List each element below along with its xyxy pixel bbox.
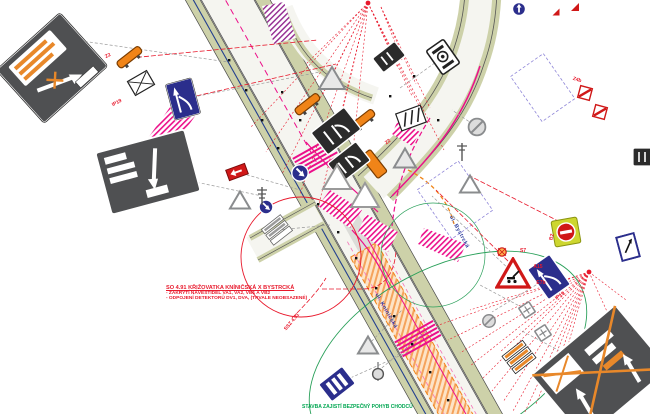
sign-code-label-a15: A15 — [533, 264, 542, 270]
existing-triangle-sign-1 — [317, 65, 347, 91]
existing-circle-sign-2 — [482, 314, 497, 329]
existing-triangle-sign-7 — [349, 181, 381, 209]
roadworks-triangle-sign — [495, 257, 531, 289]
existing-circle-sign-1 — [467, 117, 487, 137]
warning-lamp-icon — [496, 246, 508, 258]
construction-note-line2: - ODPOJENÍ DETEKTORŮ DV1, DVA, (TRVALE N… — [166, 296, 336, 301]
signal-mast-icon — [255, 185, 269, 207]
existing-diamond-sign-1 — [516, 299, 537, 320]
existing-triangle-sign-3 — [228, 190, 252, 211]
pedestrian-note: STAVBA ZAJISTÍ BEZPEČNÝ POHYB CHODCŮ — [302, 404, 413, 410]
blue-round-sign-top — [512, 2, 527, 17]
sign-code-label-e7b: E7b — [536, 280, 545, 286]
dark-lane-board-edge — [632, 147, 650, 167]
no-entry-board-sign — [550, 216, 582, 248]
existing-pole-circle-sign — [371, 360, 385, 382]
existing-diamond-sign-2 — [532, 322, 553, 343]
red-flag-icon-1 — [570, 2, 580, 12]
signal-mast-icon-2 — [455, 141, 469, 163]
existing-triangle-sign-4 — [458, 174, 482, 195]
sign-code-label-s7: S7 — [520, 248, 526, 254]
red-flag-icon-2 — [552, 8, 561, 17]
existing-triangle-sign-5 — [356, 335, 380, 356]
traffic-plan-canvas: SO 4.91 KŘIŽOVATKA KNÍNIČSKÁ X BYSTRCKÁ … — [0, 0, 650, 414]
keep-right-sign — [291, 164, 310, 183]
fan-origin-dot-right — [587, 270, 592, 275]
existing-triangle-sign-2 — [392, 147, 418, 170]
construction-note: SO 4.91 KŘIŽOVATKA KNÍNIČSKÁ X BYSTRCKÁ … — [166, 285, 336, 301]
fan-origin-dot-top — [366, 1, 371, 6]
